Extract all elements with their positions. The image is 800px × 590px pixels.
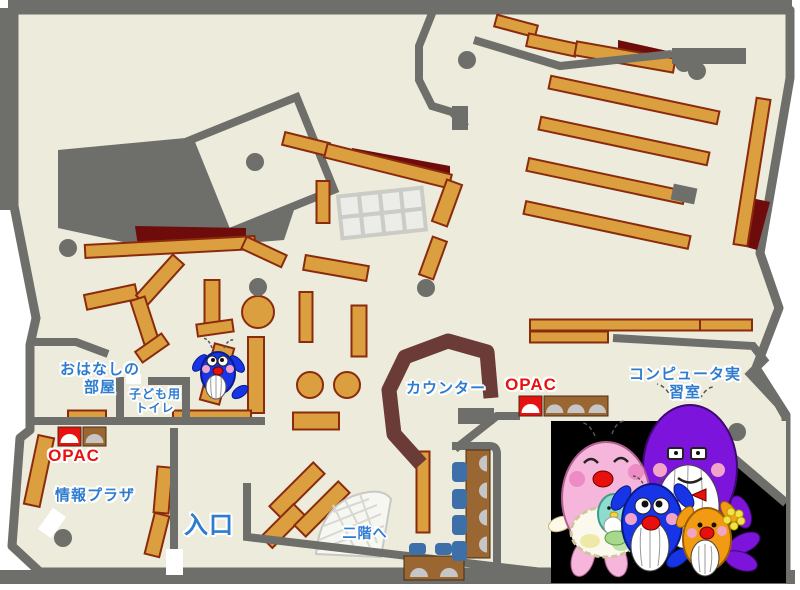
library-map-page: おはなしの 部屋 子ども用 トイレ OPAC 情報プラザ 入口 カウンター OP… bbox=[0, 0, 800, 590]
label-info-plaza: 情報プラザ bbox=[55, 487, 135, 505]
label-entrance: 入口 bbox=[184, 512, 234, 541]
label-kids-toilet: 子ども用 トイレ bbox=[129, 387, 181, 416]
label-computer-room: コンピュータ実習室 bbox=[628, 366, 743, 402]
label-stairs: 二階へ bbox=[343, 525, 388, 542]
label-opac-left: OPAC bbox=[48, 446, 100, 466]
label-counter: カウンター bbox=[406, 380, 486, 398]
label-opac-right: OPAC bbox=[505, 375, 557, 395]
